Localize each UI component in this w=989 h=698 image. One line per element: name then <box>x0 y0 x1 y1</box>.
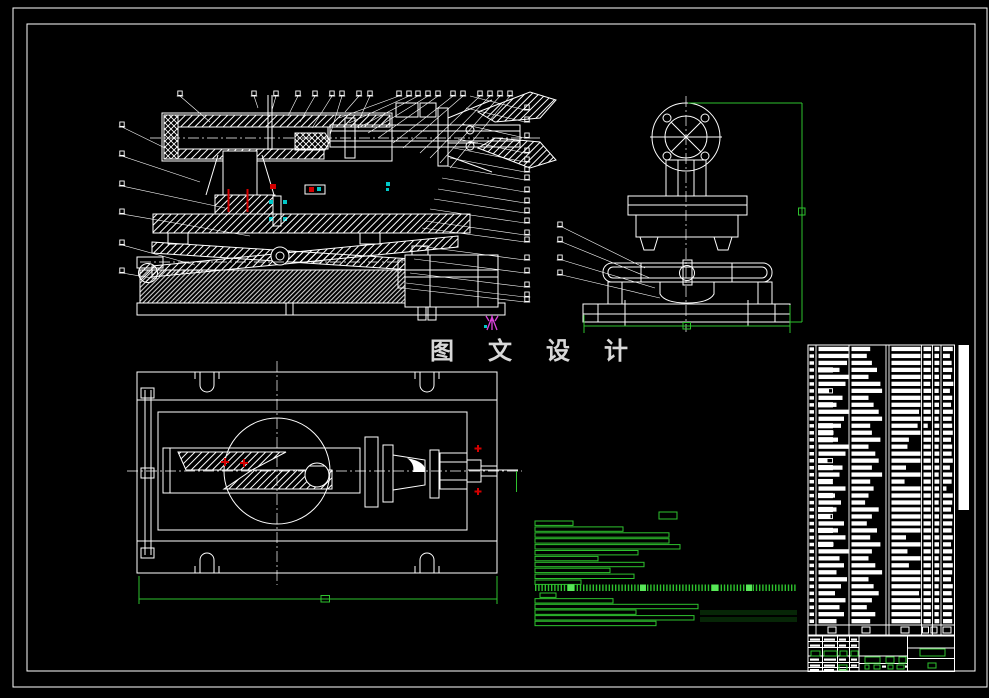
bom-row <box>810 410 953 414</box>
callout-balloon <box>406 91 412 96</box>
bom-row <box>810 382 954 386</box>
bom-row <box>810 612 952 616</box>
bom-row <box>810 584 953 588</box>
callout-balloon <box>329 91 335 96</box>
callout-balloon <box>524 230 530 235</box>
bom-row <box>810 493 953 497</box>
bom-table <box>808 345 969 635</box>
callout-balloon <box>524 297 530 302</box>
bom-row <box>810 528 952 532</box>
callout-balloon <box>356 91 362 96</box>
callout-balloon <box>557 270 563 275</box>
callout-balloon <box>251 91 257 96</box>
callout-balloon <box>415 91 421 96</box>
bom-row <box>810 605 953 609</box>
bom-row <box>810 458 953 462</box>
cad-canvas: 图 文 设 计 <box>0 0 989 698</box>
bom-row <box>810 486 947 490</box>
bom-row <box>810 598 953 602</box>
callout-balloon <box>497 91 503 96</box>
table-edge-strip <box>959 345 970 510</box>
callout-balloon <box>477 91 483 96</box>
callout-balloon <box>119 268 125 273</box>
watermark-text: 图 文 设 计 <box>430 337 642 365</box>
bom-row <box>810 368 953 372</box>
bom-row <box>810 591 952 595</box>
upper-plate <box>153 214 470 233</box>
callout-balloon <box>367 91 373 96</box>
bom-row <box>810 431 953 435</box>
callout-balloon <box>119 209 125 214</box>
bom-row <box>810 507 952 511</box>
front-section-view <box>137 92 556 330</box>
bom-row <box>810 556 952 560</box>
callout-balloon <box>119 181 125 186</box>
bom-row <box>810 438 952 442</box>
callout-balloon <box>119 122 125 127</box>
callout-balloon <box>524 208 530 213</box>
bom-row <box>810 479 952 483</box>
plan-view <box>127 361 522 604</box>
callout-balloon <box>524 255 530 260</box>
bom-row <box>810 535 953 539</box>
bom-rows <box>810 347 954 624</box>
callout-balloon <box>524 175 530 180</box>
callout-balloon <box>450 91 456 96</box>
callout-balloon <box>273 91 279 96</box>
callout-balloon <box>524 133 530 138</box>
bom-row <box>810 500 953 504</box>
bom-row <box>810 424 953 428</box>
callout-balloon <box>524 237 530 242</box>
bom-row <box>810 347 953 351</box>
callout-balloon <box>435 91 441 96</box>
bom-row <box>810 375 952 379</box>
callout-balloon <box>524 268 530 273</box>
callout-balloon <box>524 187 530 192</box>
bom-row <box>810 563 953 567</box>
bom-row <box>810 417 952 421</box>
end-view <box>583 96 805 333</box>
bom-row <box>810 403 952 407</box>
bom-row <box>810 521 953 525</box>
plan-actuator <box>365 437 518 507</box>
callout-balloon <box>339 91 345 96</box>
callout-balloon <box>524 218 530 223</box>
callout-balloon <box>177 91 183 96</box>
drawing-sheet: 图 文 设 计 <box>0 0 989 698</box>
bom-row <box>810 619 953 623</box>
bom-row <box>810 354 950 358</box>
bom-row <box>810 445 953 449</box>
title-block <box>808 636 955 672</box>
dimension-lines <box>139 471 517 604</box>
technical-notes-block <box>535 512 797 626</box>
bom-row <box>810 465 950 469</box>
callout-balloon <box>396 91 402 96</box>
lower-cylinder <box>398 246 498 320</box>
callout-balloon <box>524 198 530 203</box>
bom-row <box>810 396 953 400</box>
bom-row <box>810 452 952 456</box>
bom-row <box>810 389 950 393</box>
bom-row <box>810 570 953 574</box>
callout-balloon <box>557 255 563 260</box>
spray-mark <box>484 315 498 330</box>
bom-row <box>810 549 953 553</box>
callout-balloon <box>425 91 431 96</box>
bom-row <box>810 514 953 518</box>
callout-balloon <box>119 240 125 245</box>
bom-row <box>810 542 952 546</box>
callout-balloon <box>557 222 563 227</box>
callout-balloon <box>460 91 466 96</box>
callout-balloon <box>524 282 530 287</box>
callout-balloon <box>557 237 563 242</box>
callout-balloon <box>524 167 530 172</box>
bom-row <box>810 577 952 581</box>
drawing-number-box <box>920 649 945 656</box>
callout-balloon <box>524 292 530 297</box>
callout-balloon <box>119 151 125 156</box>
callout-balloon <box>312 91 318 96</box>
scale-box <box>928 663 936 668</box>
callout-balloon <box>295 91 301 96</box>
callout-balloon <box>507 91 513 96</box>
bom-row <box>810 361 952 365</box>
callout-balloon <box>487 91 493 96</box>
bom-row <box>810 472 953 476</box>
